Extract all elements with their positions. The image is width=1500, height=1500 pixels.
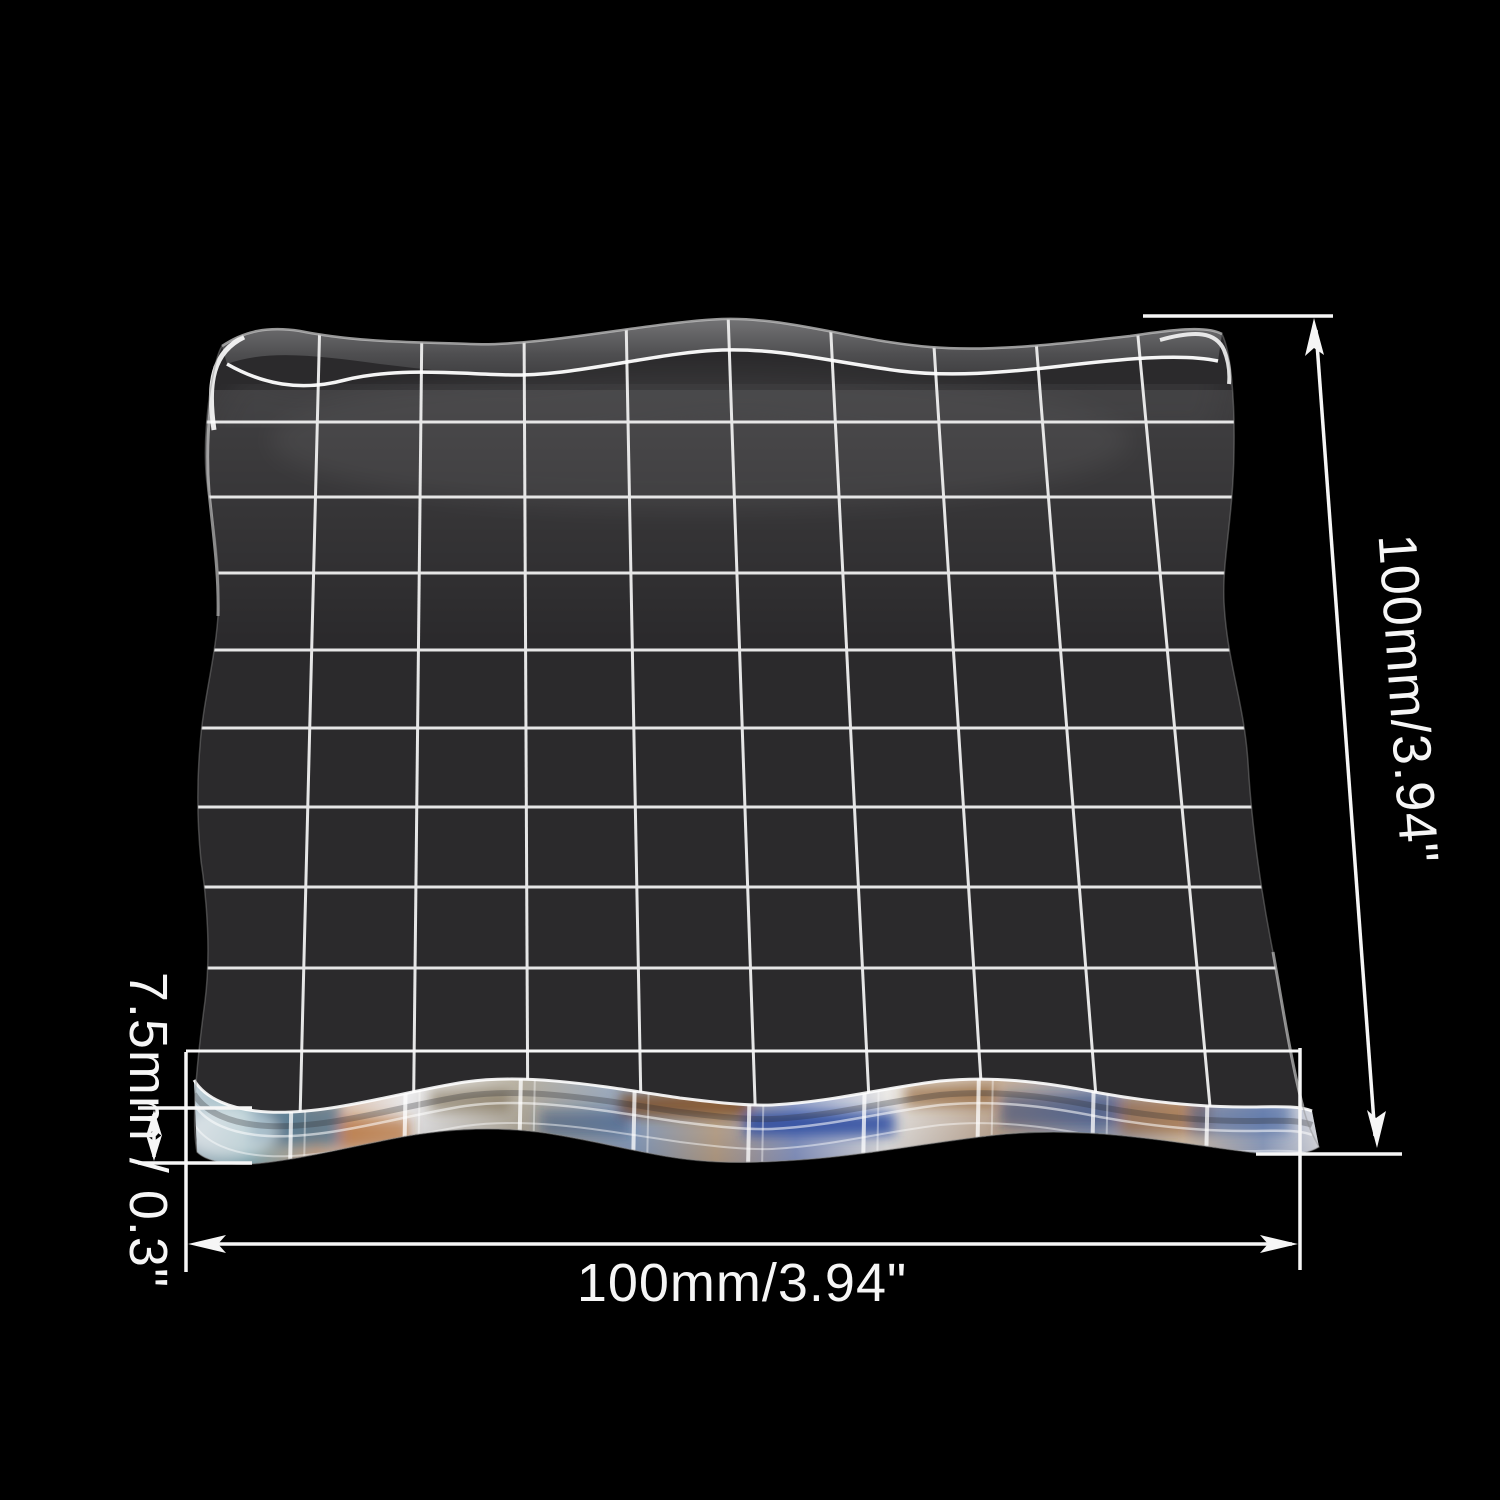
thickness-label: 7.5mm / 0.3" <box>118 972 178 1288</box>
bevel-shadow <box>227 388 1218 424</box>
product-photo: 100mm/3.94" 100mm/3.94" 7.5mm / 0.3" <box>0 0 1500 1500</box>
width-label: 100mm/3.94" <box>577 1253 907 1313</box>
dimension-diagram: 100mm/3.94" 100mm/3.94" 7.5mm / 0.3" <box>0 0 1500 1500</box>
